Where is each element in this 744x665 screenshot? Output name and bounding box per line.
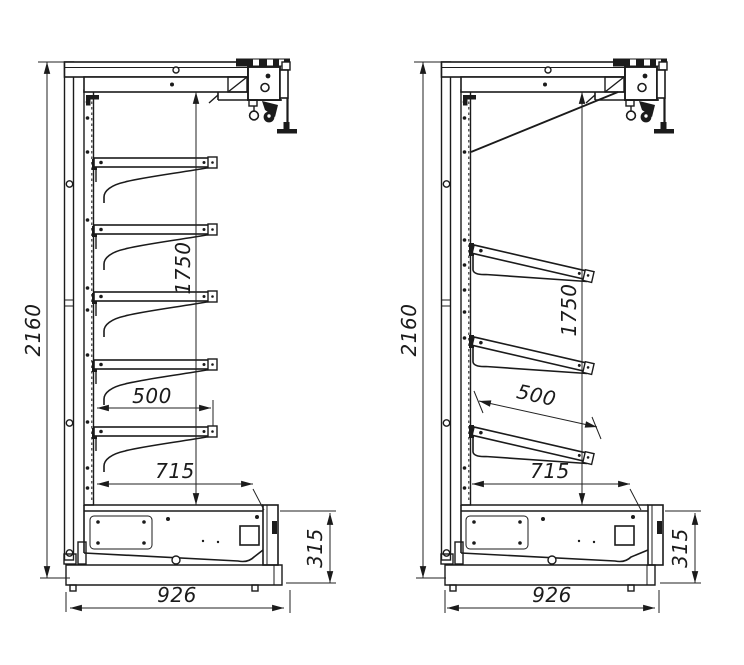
dim-base-depth: 715 (472, 459, 641, 510)
dim-label-overall-height: 2160 (21, 304, 45, 357)
dim-label-overall-height: 2160 (397, 304, 421, 357)
dim-overall-height: 2160 (397, 62, 446, 578)
dim-label-base-depth: 715 (530, 459, 570, 483)
dim-label-shelf-depth: 500 (132, 384, 172, 408)
dim-label-base-height: 315 (668, 528, 692, 568)
shelving-unit-drawing: 2160 1750 500 715 315 (0, 0, 744, 665)
dim-label-base-depth: 715 (155, 459, 195, 483)
dim-label-overall-depth: 926 (532, 583, 572, 607)
dim-label-overall-depth: 926 (157, 583, 197, 607)
shelf-bracket (92, 157, 217, 203)
dim-overall-depth: 926 (66, 583, 290, 613)
left-shelf-brackets (92, 157, 217, 472)
right-base-unit (445, 505, 663, 591)
inclined-shelf-bracket (469, 243, 594, 282)
right-post (441, 62, 471, 564)
left-base-unit (66, 505, 282, 591)
dim-base-depth: 715 (97, 459, 264, 510)
dim-label-base-height: 315 (303, 528, 327, 568)
dim-label-mount-height: 1750 (171, 242, 195, 295)
shelf-bracket (92, 291, 217, 337)
inclined-shelf-bracket (469, 335, 594, 374)
dim-label-shelf-depth: 500 (515, 379, 559, 411)
left-view: 2160 1750 500 715 315 (21, 59, 336, 614)
right-shelf-brackets (469, 243, 594, 464)
dim-base-height: 315 (280, 511, 336, 583)
right-base-vent (615, 526, 634, 545)
dim-label-mount-height: 1750 (557, 284, 581, 337)
dim-mount-height: 1750 (557, 92, 582, 505)
right-view: 2160 1750 500 715 315 (397, 59, 701, 614)
dim-base-height: 315 (660, 511, 701, 583)
left-base-vent (240, 526, 259, 545)
shelf-bracket (92, 224, 217, 270)
dim-overall-height: 2160 (21, 62, 70, 578)
left-post (64, 62, 94, 564)
air-curtain-diagonal (471, 92, 618, 152)
technical-drawing-canvas: 2160 1750 500 715 315 (0, 0, 744, 665)
dim-overall-depth: 926 (445, 583, 659, 613)
